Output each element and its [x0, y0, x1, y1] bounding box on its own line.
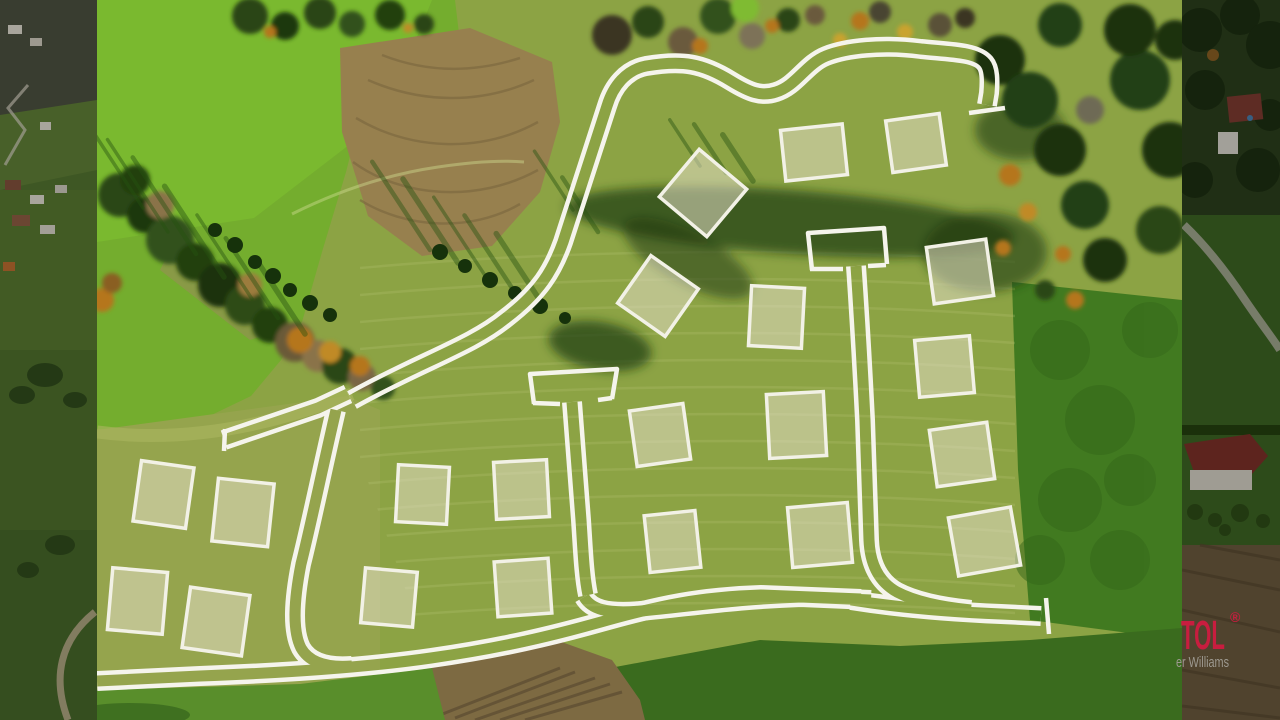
- aerial-photo-composite: TOL ® er Williams: [0, 0, 1280, 720]
- plot: [361, 568, 418, 627]
- plot: [494, 460, 550, 520]
- plot: [915, 336, 975, 398]
- plot: [748, 286, 804, 349]
- watermark-agency-text: er Williams: [1176, 654, 1229, 671]
- plot: [494, 558, 552, 617]
- plot: [182, 587, 250, 656]
- plot: [212, 478, 274, 547]
- watermark-brand-text: TOL: [1181, 612, 1225, 658]
- plot: [886, 113, 947, 172]
- video-frame: TOL ® er Williams: [0, 0, 1280, 720]
- plot: [926, 239, 993, 304]
- main-aerial-photo: [70, 0, 1198, 720]
- plot: [644, 510, 701, 572]
- plot: [781, 124, 848, 181]
- watermark-registered-mark: ®: [1230, 609, 1241, 625]
- plot: [107, 568, 167, 635]
- road-detail-line: [224, 429, 225, 451]
- plot: [787, 502, 852, 567]
- left-bar-scene: [0, 0, 97, 720]
- roads-overlay: [97, 0, 1182, 720]
- plot: [133, 461, 194, 529]
- plot: [766, 392, 826, 459]
- plot: [396, 465, 450, 525]
- plot: [629, 404, 690, 467]
- plot: [929, 422, 994, 487]
- plot: [948, 507, 1020, 576]
- road-detail-line: [1046, 598, 1049, 634]
